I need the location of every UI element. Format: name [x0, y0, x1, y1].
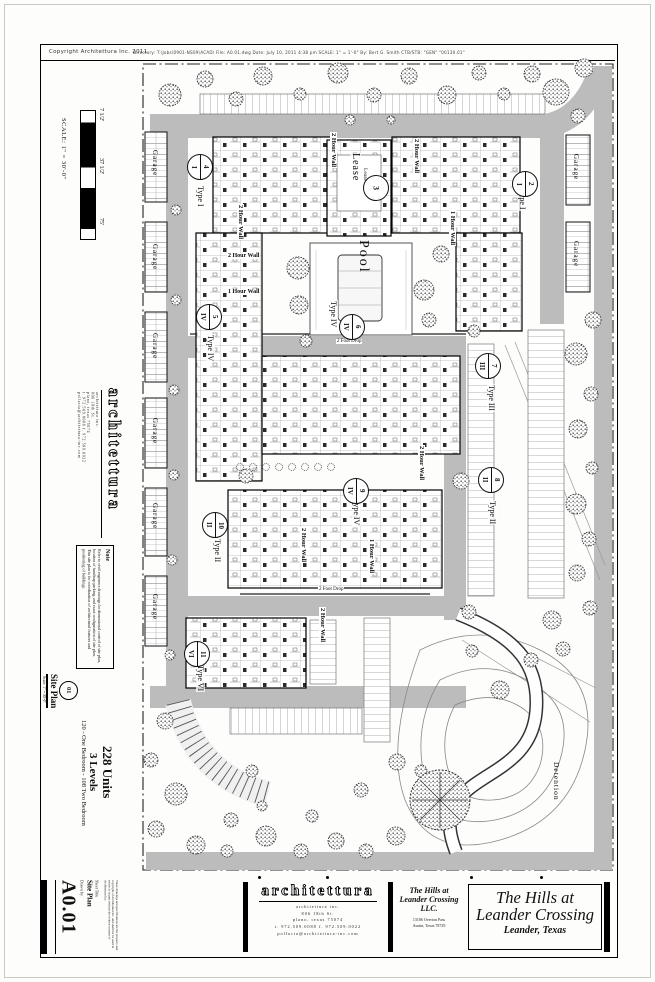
- sheet-title: Site Plan: [86, 880, 94, 954]
- wall-rating-label: 2 Hour Wall: [237, 204, 244, 240]
- firm-address-line: architettura inc.: [249, 904, 387, 911]
- type-label: Type II: [488, 500, 497, 525]
- type-label: Type I: [196, 185, 205, 208]
- garage-label: Garage: [151, 503, 159, 529]
- tag-number: 11: [197, 642, 209, 666]
- firm-address-line: 806 18th St.: [249, 911, 387, 918]
- site-plan-sheet: Copyright Architettura Inc. 2011 Directo…: [0, 0, 655, 982]
- firm-address-line: plano, texas 75074: [86, 392, 90, 433]
- firm-address-line: pollacia@architettura-inc.com: [77, 392, 81, 459]
- sheet-number-block: These drawings and specifications are th…: [48, 880, 118, 954]
- garage-label: Garage: [572, 241, 580, 267]
- project-name: The Hills at: [469, 889, 601, 906]
- tag-number: 6: [352, 315, 364, 339]
- building-tag: I 4: [187, 154, 213, 180]
- type-label: Type II: [213, 538, 222, 563]
- unit-count: 228 Units: [99, 650, 115, 895]
- tag-type: I: [514, 172, 525, 196]
- lease-tag-number: 3: [372, 186, 381, 190]
- lease-building-tag: 3: [363, 175, 389, 201]
- firm-address-line: pollacia@architettura-inc.com: [249, 931, 387, 938]
- level-count: 3 Levels: [87, 650, 99, 895]
- client-name: The Hills at: [394, 886, 464, 895]
- firm-logo-side: architettura: [104, 388, 124, 512]
- firm-address-line: t. 972.509.0088 f. 972.509.0022: [249, 924, 387, 931]
- client-address: Austin, Texas 78729: [394, 923, 464, 929]
- registration-dot: [326, 876, 329, 879]
- tag-type: II: [480, 468, 491, 492]
- graphic-scale-bar: [80, 110, 96, 240]
- wall-rating-label: 2 Hour Wall: [300, 527, 307, 563]
- viewport-title: Site Plan: [46, 674, 59, 708]
- viewport-marker: 01 Site Plan Scale: 1" = 30'-0": [42, 674, 78, 708]
- type-label: Type IV: [329, 300, 338, 328]
- title-bar-accent: [388, 882, 393, 952]
- tag-type: IV: [345, 479, 356, 503]
- registration-dot: [470, 876, 473, 879]
- firm-address-line: 806 18th St.: [91, 392, 95, 419]
- scale-tick: 37 1/2': [98, 158, 104, 174]
- title-bar-accent: [243, 882, 248, 952]
- unit-mix: 120 - One Bedroom - 108 Two Bedroom: [80, 650, 87, 895]
- wall-rating-label: 2 Hour Wall: [227, 253, 260, 259]
- detention-tree: [410, 770, 470, 830]
- building-tag: I 2: [512, 171, 538, 197]
- scale-tick: 7 1/2': [98, 108, 104, 121]
- program-block: 228 Units 3 Levels 120 - One Bedroom - 1…: [80, 650, 115, 895]
- building-tag: IV 6: [339, 314, 365, 340]
- lease-label: Lease: [350, 153, 361, 181]
- sheet-disclaimer: These drawings and specifications are th…: [103, 880, 118, 954]
- scale-tick: 75': [98, 218, 104, 225]
- note-title: Note: [104, 549, 110, 665]
- viewport-line: 01 Site Plan: [46, 674, 78, 708]
- title-bar-accent: [604, 882, 610, 952]
- firm-logo: architettura: [259, 883, 376, 902]
- tag-type: VI: [186, 642, 197, 666]
- tag-number: 7: [488, 354, 500, 378]
- logo-underline: [101, 390, 102, 538]
- garage-label: Garage: [151, 594, 159, 620]
- registration-dot: [540, 876, 543, 879]
- wall-rating-label: 1 Hour Wall: [449, 210, 456, 246]
- project-name: Leander Crossing: [469, 906, 601, 923]
- scale-text: SCALE: 1" = 30'-0": [60, 118, 67, 180]
- tag-number: 9: [356, 479, 368, 503]
- tag-number: 10: [215, 513, 227, 537]
- wall-rating-label: 2 Hour Wall: [413, 138, 420, 174]
- building-tag: III 7: [475, 353, 501, 379]
- drawn-by-label: Drawn by: [80, 880, 85, 954]
- garage-label: Garage: [151, 244, 159, 270]
- viewport-number: 01: [59, 681, 78, 700]
- building-tag: IV 5: [196, 304, 222, 330]
- wall-rating-label: 2 Hour Wall: [418, 445, 425, 481]
- firm-address-line: architettura inc.: [95, 392, 99, 428]
- title-bar-accent: [40, 880, 47, 954]
- detention-label: Detention: [552, 762, 561, 801]
- tag-number: 2: [525, 172, 537, 196]
- tag-type: III: [477, 354, 488, 378]
- sheet-title-label: Sheet Title: [95, 880, 100, 954]
- tag-type: II: [204, 513, 215, 537]
- pool-label: Pool: [355, 240, 371, 274]
- garage-label: Garage: [572, 154, 580, 180]
- building-tag: IV 9: [343, 478, 369, 504]
- type-label: Type IV: [206, 334, 215, 362]
- type-label: Type III: [487, 384, 496, 412]
- firm-address-line: t. 972.509.0088 f. 972.509.0022: [82, 392, 86, 463]
- garage-label: Garage: [151, 150, 159, 176]
- tag-number: 8: [491, 468, 503, 492]
- building-tag: II 8: [478, 467, 504, 493]
- firm-address-line: plano, texas 75074: [249, 917, 387, 924]
- garage-label: Garage: [151, 333, 159, 359]
- type-label: Type VI: [196, 664, 205, 692]
- wall-rating-label: 1 Hour Wall: [227, 289, 260, 295]
- client-block: The Hills at Leander Crossing LLC. 13186…: [394, 886, 464, 929]
- tag-type: IV: [198, 305, 209, 329]
- project-title-block: The Hills at Leander Crossing Leander, T…: [468, 884, 602, 950]
- sheet-number: A0.01: [55, 880, 80, 954]
- tag-type: IV: [341, 315, 352, 339]
- tag-number: 4: [200, 155, 212, 179]
- grade-drop-label: 2 Foot Drop: [318, 587, 344, 592]
- tag-number: 5: [209, 305, 221, 329]
- building-tag: II 10: [202, 512, 228, 538]
- registration-dot: [258, 876, 261, 879]
- firm-title-block: architettura architettura inc. 806 18th …: [249, 882, 387, 952]
- wall-rating-label: 1 Hour Wall: [368, 538, 375, 574]
- wall-rating-label: 2 Hour Wall: [330, 132, 337, 168]
- project-location: Leander, Texas: [469, 925, 601, 936]
- building-tag: VI 11: [184, 641, 210, 667]
- garage-label: Garage: [151, 418, 159, 444]
- note-body: Refer to civil engineers drawings for di…: [82, 549, 102, 665]
- wall-rating-label: 2 Hour Wall: [319, 607, 326, 643]
- client-name: Leander Crossing LLC.: [394, 895, 464, 913]
- tag-type: I: [189, 155, 200, 179]
